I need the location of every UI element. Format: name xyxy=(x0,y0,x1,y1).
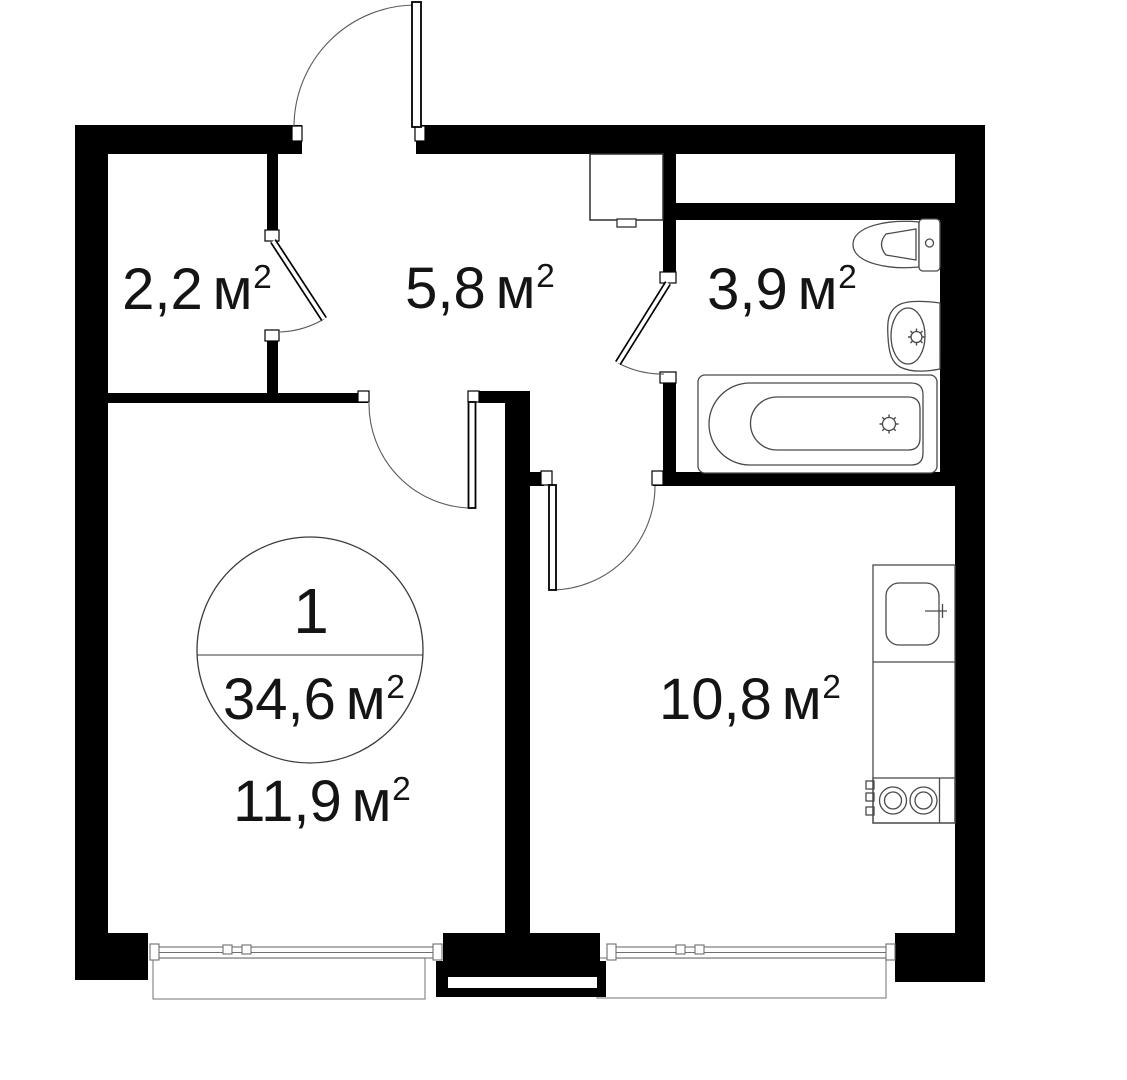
utility-box xyxy=(590,154,663,227)
window-left xyxy=(150,944,442,960)
bathtub xyxy=(698,375,937,473)
bedroom-door-leaf xyxy=(469,402,476,508)
floor-plan: 1 34,6м2 2,2м2 5,8м2 3,9м2 10,8м2 11,9м2 xyxy=(0,0,1127,1080)
room-label-bathroom: 3,9м2 xyxy=(707,261,857,319)
floor-plan-drawing xyxy=(0,0,1127,1080)
entrance-door xyxy=(292,2,425,141)
window-right xyxy=(607,944,895,960)
kitchen-door xyxy=(541,471,663,590)
room-label-kitchen: 10,8м2 xyxy=(659,671,841,729)
bathroom-sink xyxy=(888,301,940,371)
storage-door xyxy=(265,230,324,341)
room-label-bedroom: 11,9м2 xyxy=(233,773,411,831)
bedroom-door xyxy=(358,391,479,508)
toilet xyxy=(853,219,940,271)
room-label-storage: 2,2м2 xyxy=(122,261,272,319)
unit-rooms-count: 1 xyxy=(293,579,329,643)
bathroom-door xyxy=(618,272,676,383)
balcony-outline-left xyxy=(153,958,425,999)
kitchen-counter xyxy=(866,565,955,823)
room-label-hallway: 5,8м2 xyxy=(405,260,555,318)
balcony-outline-right xyxy=(597,958,886,998)
unit-total-area-value: 34,6 xyxy=(223,667,336,732)
kitchen-door-leaf xyxy=(549,485,556,590)
pier-slot xyxy=(448,977,597,988)
unit-total-area: 34,6м2 xyxy=(223,671,405,729)
entrance-door-leaf xyxy=(412,2,421,127)
